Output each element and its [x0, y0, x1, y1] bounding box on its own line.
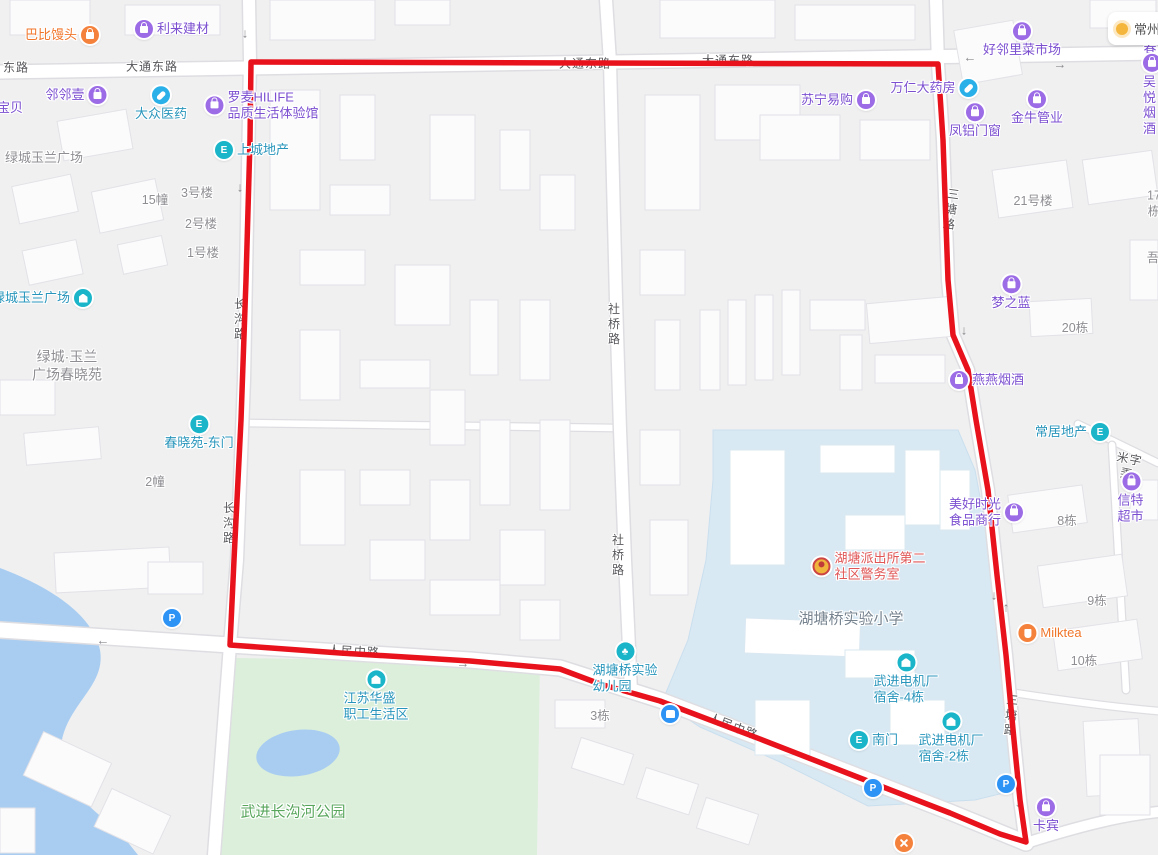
poi-label: 巴比馒头 — [25, 27, 77, 43]
poi-label: 卡宾 — [1033, 818, 1059, 834]
shop-bag-icon — [966, 103, 984, 121]
poi-haolinli-caishichang[interactable]: 好邻里菜市场 — [983, 22, 1061, 58]
shop-bag-icon — [857, 91, 875, 109]
poi-label: 绿城玉兰广场 — [0, 290, 70, 306]
poi-label: 罗麦HILIFE 品质生活体验馆 — [227, 89, 318, 120]
parking-icon: P — [997, 775, 1015, 793]
poi-label: 金牛管业 — [1011, 110, 1063, 126]
weather-city: 常州 — [1134, 19, 1158, 38]
poi-label: 美好时光 食品商行 — [949, 496, 1001, 527]
poi-hutangqiao-kindergarten[interactable]: ♣湖塘桥实验 幼儿园 — [592, 642, 657, 693]
poi-layer: 绿城玉兰广场绿城·玉兰 广场春晓苑湖塘桥实验小学武进长沟河公园15幢3号楼2号楼… — [0, 0, 1158, 855]
gate-icon: E — [190, 415, 208, 433]
poi-chunxiaoyuan-dongmen[interactable]: E春晓苑-东门 — [164, 415, 233, 451]
area-label-lvcheng-chunxiaoyuan: 绿城·玉兰 广场春晓苑 — [32, 349, 102, 384]
poi-label: 上城地产 — [237, 142, 289, 158]
shop-bag-icon — [1037, 798, 1055, 816]
bldg-label-21haolou: 21号楼 — [1014, 194, 1053, 210]
poi-lilai-jiancai[interactable]: 利来建材 — [135, 20, 209, 38]
bldg-label-20dong: 20栋 — [1062, 321, 1088, 337]
bldg-label-1haolou: 1号楼 — [187, 246, 219, 262]
bldg-label-8dong: 8栋 — [1057, 514, 1076, 530]
poi-xinte-chaoshi[interactable]: 信特超市 — [1118, 472, 1145, 523]
gate-icon: E — [850, 731, 868, 749]
poi-label: Milktea — [1040, 625, 1081, 641]
shop-bag-icon — [1002, 275, 1020, 293]
poi-label: 春晓苑-东门 — [164, 435, 233, 451]
poi-dazhong-yiyao[interactable]: 大众医药 — [135, 86, 187, 122]
poi-label: 凤铝门窗 — [949, 123, 1001, 139]
milktea-cup-icon — [1018, 624, 1036, 642]
poi-label: 南门 — [872, 732, 898, 748]
poi-wuyue-yanjiu[interactable]: 吴悦烟酒 — [1143, 54, 1158, 136]
poi-changju-dichan[interactable]: 常居地产E — [1035, 423, 1109, 441]
poi-label: 万仁大药房 — [890, 80, 955, 96]
shop-bag-icon — [950, 371, 968, 389]
poi-restaurant[interactable] — [895, 834, 913, 852]
building-icon — [74, 289, 92, 307]
building-icon — [367, 670, 385, 688]
building-icon — [897, 653, 915, 671]
map-viewport[interactable]: 东路大通东路大通东路大通东路长沟路长沟路社桥路社桥路三塘路三塘路人民中路人民中路… — [0, 0, 1158, 855]
weather-widget[interactable]: 常州 — [1108, 12, 1158, 45]
area-label-lvcheng-yulan-plaza: 绿城玉兰广场 — [5, 150, 83, 166]
bldg-label-15zhuang: 15幢 — [142, 193, 168, 209]
poi-babi-mantou[interactable]: 巴比馒头 — [25, 26, 99, 44]
poi-label: 利来建材 — [157, 21, 209, 37]
gate-icon: E — [215, 141, 233, 159]
poi-luomai-hilife[interactable]: 罗麦HILIFE 品质生活体验馆 — [205, 89, 318, 120]
poi-jinniu-guanye[interactable]: 金牛管业 — [1011, 90, 1063, 126]
shop-bag-icon — [1122, 472, 1140, 490]
food-shop-icon — [81, 26, 99, 44]
area-label-wujin-changgouhe-park: 武进长沟河公园 — [240, 804, 345, 823]
poi-label: 吴悦烟酒 — [1143, 74, 1158, 136]
poi-label: 宝贝 — [0, 100, 23, 116]
poi-label: 好邻里菜市场 — [983, 42, 1061, 58]
poi-label: 大众医药 — [135, 106, 187, 122]
restaurant-icon — [895, 834, 913, 852]
bldg-label-3dong: 3栋 — [590, 709, 609, 725]
bus-stop-icon — [661, 705, 679, 723]
bldg-label-9dong: 9栋 — [1087, 594, 1106, 610]
bldg-label-10dong: 10栋 — [1071, 654, 1097, 670]
poi-bus-stop[interactable] — [661, 705, 679, 723]
poi-label: 常居地产 — [1035, 424, 1087, 440]
poi-lvcheng-yulan-plaza[interactable]: 绿城玉兰广场 — [0, 289, 92, 307]
poi-kabin[interactable]: 卡宾 — [1033, 798, 1059, 834]
poi-jiangsu-huasheng[interactable]: 江苏华盛 职工生活区 — [343, 670, 408, 721]
shop-bag-icon — [205, 96, 223, 114]
parking-icon: P — [163, 609, 181, 627]
poi-wujin-dianjichang-sushe-4[interactable]: 武进电机厂 宿舍-4栋 — [873, 653, 938, 704]
poi-label: 武进电机厂 宿舍-4栋 — [873, 673, 938, 704]
poi-label: 邻邻壹 — [45, 87, 84, 103]
poi-shangcheng-dichan[interactable]: E上城地产 — [215, 141, 289, 159]
gate-icon: E — [1091, 423, 1109, 441]
shop-bag-icon — [89, 86, 107, 104]
poi-label: 湖塘桥实验 幼儿园 — [592, 662, 657, 693]
poi-wanren-dayaofang[interactable]: 万仁大药房 — [890, 79, 977, 97]
bldg-label-2haolou: 2号楼 — [185, 217, 217, 233]
poi-parking-east[interactable]: P — [997, 775, 1015, 793]
poi-mengzhilan[interactable]: 梦之蓝 — [991, 275, 1030, 311]
shop-bag-icon — [135, 20, 153, 38]
poi-label: 江苏华盛 职工生活区 — [343, 690, 408, 721]
poi-meihao-shiguang[interactable]: 美好时光 食品商行 — [949, 496, 1023, 527]
poi-label: 燕燕烟酒 — [972, 372, 1024, 388]
police-badge-icon — [812, 557, 830, 575]
poi-label: 湖塘派出所第二 社区警务室 — [834, 550, 925, 581]
pharmacy-icon — [152, 86, 170, 104]
poi-fenglv-menchuang[interactable]: 凤铝门窗 — [949, 103, 1001, 139]
area-label-hutangqiao-primary-school: 湖塘桥实验小学 — [798, 611, 903, 630]
bldg-label-3haolou: 3号楼 — [181, 186, 213, 202]
tree-icon: ♣ — [616, 642, 634, 660]
shop-bag-icon — [1028, 90, 1046, 108]
shop-bag-icon — [1005, 503, 1023, 521]
pharmacy-icon — [960, 79, 978, 97]
poi-hutang-paichusuo[interactable]: 湖塘派出所第二 社区警务室 — [812, 550, 925, 581]
poi-label: 苏宁易购 — [801, 92, 853, 108]
poi-label: 武进电机厂 宿舍-2栋 — [918, 732, 983, 763]
poi-label: 信特超市 — [1118, 492, 1145, 523]
shop-bag-icon — [1013, 22, 1031, 40]
bldg-label-wu: 吾 — [1147, 251, 1158, 267]
poi-yanyan-yanjiu[interactable]: 燕燕烟酒 — [950, 371, 1024, 389]
poi-suning-yigou[interactable]: 苏宁易购 — [801, 91, 875, 109]
bldg-label-17dong: 17栋 — [1147, 188, 1158, 219]
poi-wujin-dianjichang-sushe-2[interactable]: 武进电机厂 宿舍-2栋 — [918, 712, 983, 763]
poi-parking-south[interactable]: P — [864, 779, 882, 797]
bldg-label-2zhuang: 2幢 — [145, 475, 164, 491]
poi-baobei[interactable]: 宝贝 — [0, 100, 23, 116]
sun-icon — [1116, 23, 1128, 35]
poi-milktea[interactable]: Milktea — [1018, 624, 1081, 642]
parking-icon: P — [864, 779, 882, 797]
poi-linlinyi[interactable]: 邻邻壹 — [45, 86, 106, 104]
poi-nanmen[interactable]: E南门 — [850, 731, 898, 749]
shop-bag-icon — [1143, 54, 1158, 72]
poi-parking-west[interactable]: P — [163, 609, 181, 627]
poi-label: 梦之蓝 — [991, 295, 1030, 311]
building-icon — [942, 712, 960, 730]
